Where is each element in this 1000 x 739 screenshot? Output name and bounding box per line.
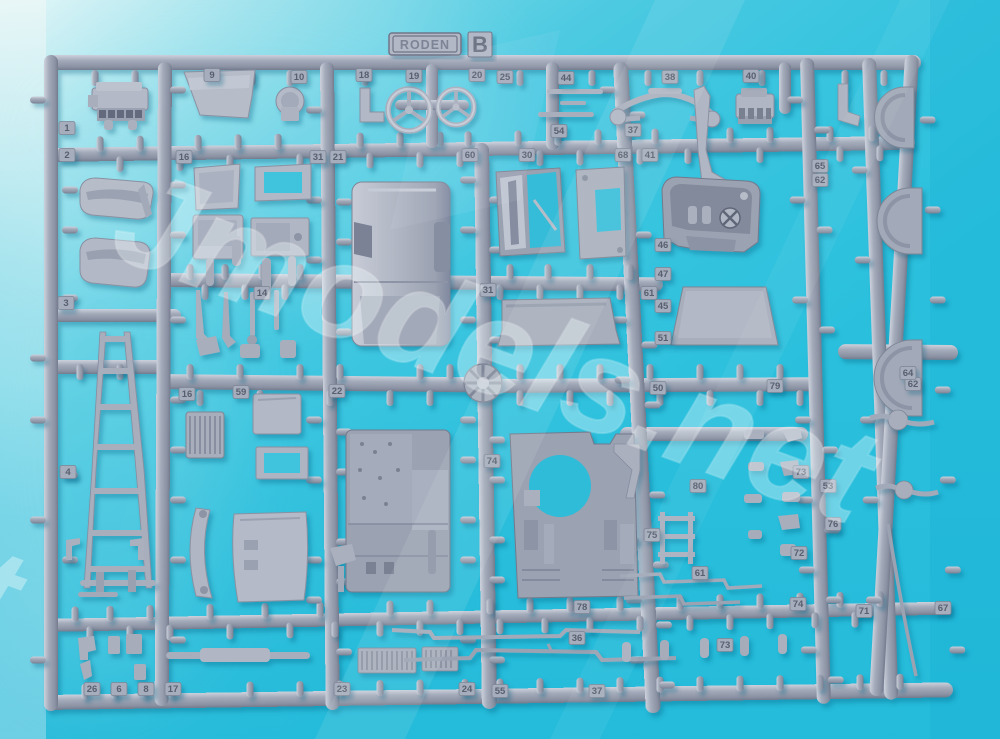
svg-text:71: 71 bbox=[859, 606, 870, 617]
svg-text:8: 8 bbox=[143, 684, 148, 695]
svg-text:46: 46 bbox=[658, 240, 669, 251]
svg-text:1: 1 bbox=[64, 123, 70, 134]
svg-text:54: 54 bbox=[554, 126, 565, 137]
svg-text:24: 24 bbox=[462, 684, 473, 695]
svg-text:18: 18 bbox=[359, 70, 370, 81]
svg-text:17: 17 bbox=[168, 684, 179, 695]
svg-text:19: 19 bbox=[409, 71, 420, 82]
svg-text:55: 55 bbox=[495, 686, 506, 697]
svg-text:31: 31 bbox=[313, 152, 324, 163]
svg-text:10: 10 bbox=[294, 72, 305, 83]
svg-text:59: 59 bbox=[236, 387, 247, 398]
svg-text:78: 78 bbox=[577, 602, 588, 613]
svg-text:45: 45 bbox=[658, 301, 669, 312]
svg-text:4: 4 bbox=[65, 467, 71, 478]
svg-text:6: 6 bbox=[116, 684, 121, 695]
svg-text:67: 67 bbox=[938, 603, 949, 614]
svg-text:21: 21 bbox=[333, 152, 344, 163]
svg-text:9: 9 bbox=[209, 70, 214, 81]
svg-text:26: 26 bbox=[87, 684, 98, 695]
svg-text:62: 62 bbox=[908, 379, 919, 390]
svg-text:74: 74 bbox=[793, 599, 804, 610]
svg-text:16: 16 bbox=[182, 389, 193, 400]
svg-text:72: 72 bbox=[794, 548, 805, 559]
svg-text:61: 61 bbox=[695, 568, 706, 579]
svg-text:47: 47 bbox=[658, 269, 669, 280]
svg-text:40: 40 bbox=[746, 71, 757, 82]
svg-text:44: 44 bbox=[561, 73, 572, 84]
svg-text:3: 3 bbox=[63, 298, 68, 309]
svg-text:22: 22 bbox=[332, 386, 343, 397]
svg-text:2: 2 bbox=[64, 150, 69, 161]
svg-text:61: 61 bbox=[644, 288, 655, 299]
svg-text:36: 36 bbox=[572, 633, 583, 644]
svg-text:RODEN: RODEN bbox=[400, 38, 450, 52]
svg-text:64: 64 bbox=[903, 368, 914, 379]
svg-text:73: 73 bbox=[720, 640, 731, 651]
